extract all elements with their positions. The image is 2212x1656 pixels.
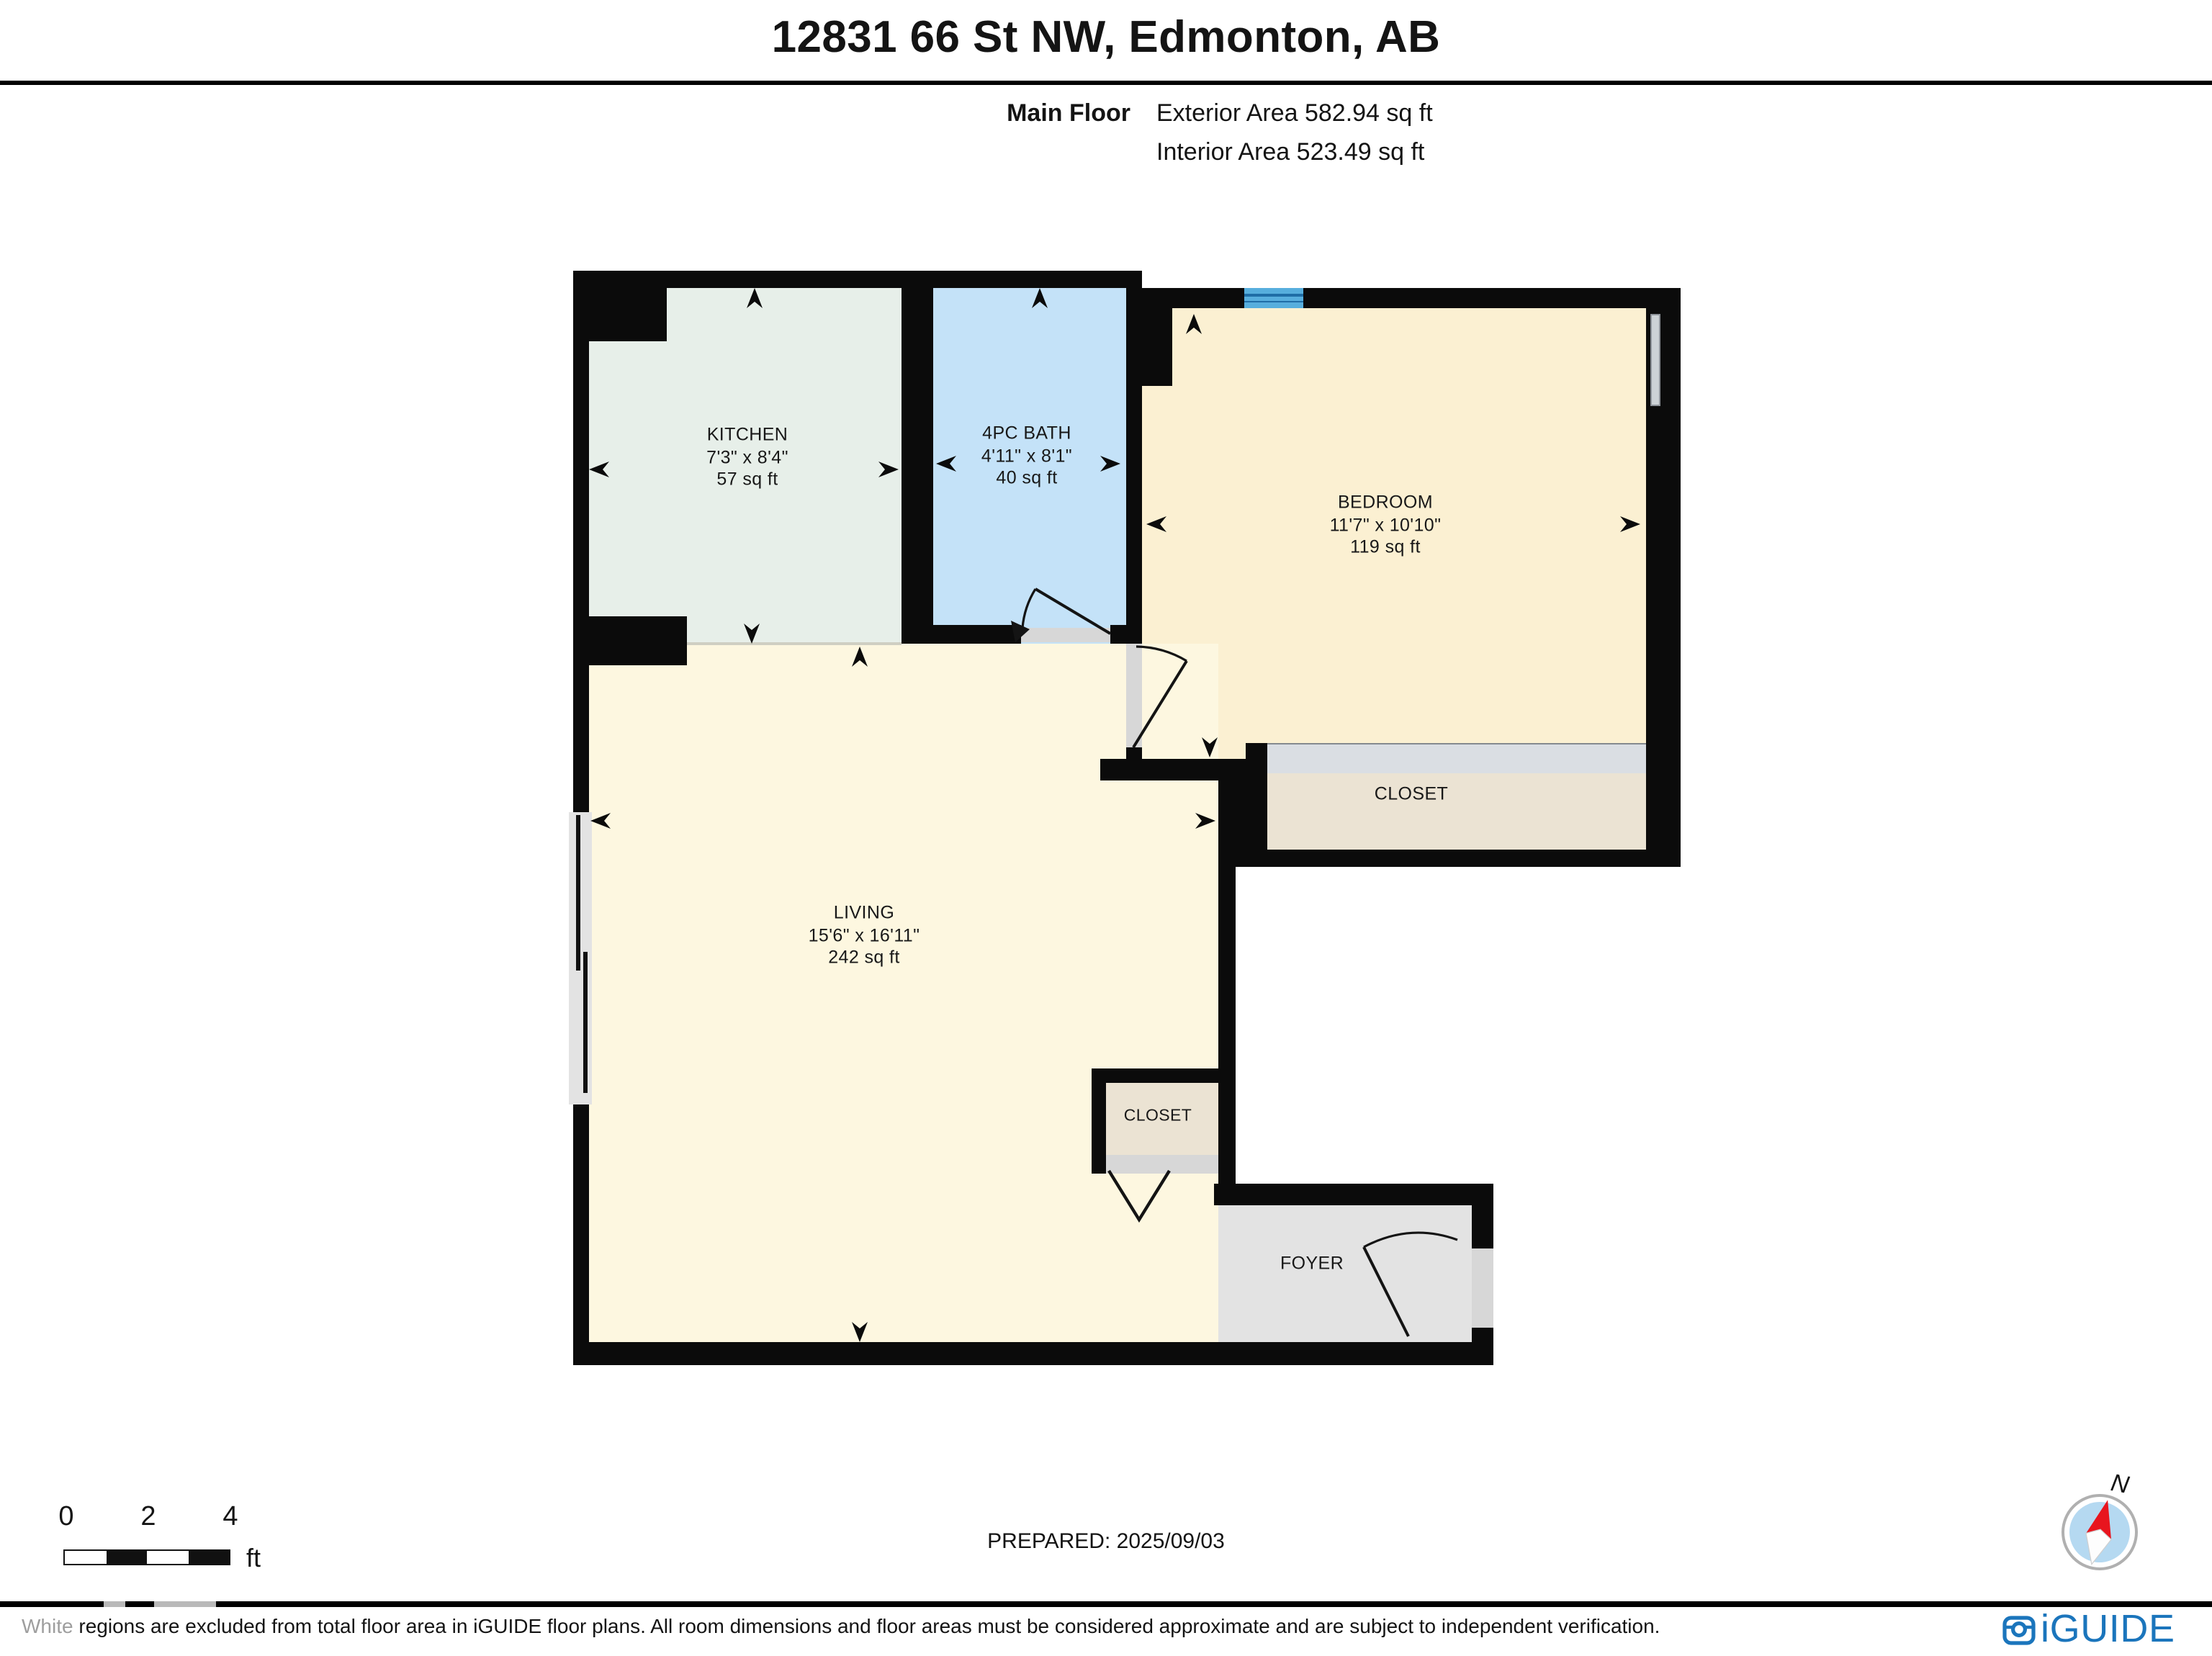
wall-segment [1246, 850, 1681, 867]
iguide-wordmark: iGUIDE [2041, 1607, 2175, 1652]
room-area: 242 sq ft [809, 948, 920, 970]
room-label-bath: 4PC BATH 4'11" x 8'1" 40 sq ft [981, 423, 1072, 490]
sliding-panel [576, 815, 580, 971]
room-name: CLOSET [1375, 784, 1448, 806]
room-name: 4PC BATH [981, 423, 1072, 446]
bedroom-top-window [1244, 288, 1303, 308]
wall-segment [902, 271, 933, 644]
window-mullion [1244, 294, 1303, 296]
disclaimer-text: White regions are excluded from total fl… [22, 1614, 1660, 1637]
wall-segment [933, 625, 1021, 644]
room-dims: 11'7" x 10'10" [1330, 515, 1442, 537]
room-label-living-closet: CLOSET [1124, 1107, 1192, 1129]
wall-segment [573, 616, 687, 665]
room-name: FOYER [1280, 1254, 1344, 1276]
room-label-foyer: FOYER [1280, 1254, 1344, 1276]
footer-divider-gap [104, 1601, 125, 1606]
compass-icon [2061, 1493, 2139, 1571]
bedroom-side-window [1650, 314, 1660, 406]
living-closet-door-strip [1106, 1155, 1218, 1174]
window-mullion [1244, 300, 1303, 302]
room-dims: 4'11" x 8'1" [981, 446, 1072, 468]
bedroom-closet-sliding-door [1267, 743, 1646, 773]
wall-segment [1214, 1184, 1493, 1205]
room-area: 40 sq ft [981, 468, 1072, 490]
wall-segment [1126, 288, 1681, 308]
room-name: LIVING [809, 903, 920, 925]
wall-segment [1092, 1068, 1106, 1174]
iguide-logo: iGUIDE [2002, 1607, 2175, 1652]
wall-segment [1472, 1205, 1493, 1248]
room-area: 57 sq ft [706, 469, 788, 492]
disclaimer-lead: White [22, 1614, 73, 1637]
sliding-panel [583, 952, 588, 1093]
prepared-date: PREPARED: 2025/09/03 [0, 1529, 2212, 1554]
wall-segment [1126, 288, 1142, 647]
disclaimer-rest: regions are excluded from total floor ar… [73, 1614, 1660, 1637]
footer-divider-gap [154, 1601, 216, 1606]
wall-segment [1218, 867, 1236, 1184]
room-label-living: LIVING 15'6" x 16'11" 242 sq ft [809, 903, 920, 970]
footer-divider [0, 1601, 2212, 1606]
room-name: CLOSET [1124, 1107, 1192, 1129]
iguide-camera-icon [2002, 1612, 2036, 1647]
room-label-bedroom: BEDROOM 11'7" x 10'10" 119 sq ft [1330, 492, 1442, 559]
room-name: BEDROOM [1330, 492, 1442, 515]
room-area: 119 sq ft [1330, 537, 1442, 559]
bedroom-door-opening [1126, 644, 1142, 747]
living-sliding-window [569, 812, 592, 1104]
room-living [589, 644, 1218, 1342]
wall-segment [1142, 308, 1172, 386]
room-label-bedroom-closet: CLOSET [1375, 784, 1448, 806]
floorplan-page: 12831 66 St NW, Edmonton, AB Main Floor … [0, 0, 2212, 1656]
open-boundary-line [687, 642, 902, 644]
floor-plan: KITCHEN 7'3" x 8'4" 57 sq ft 4PC BATH 4'… [0, 0, 2212, 1656]
foyer-entry-door-opening [1472, 1248, 1493, 1328]
wall-segment [573, 1094, 589, 1365]
wall-segment [573, 271, 589, 821]
room-label-kitchen: KITCHEN 7'3" x 8'4" 57 sq ft [706, 425, 788, 492]
bath-door-opening [1021, 628, 1110, 642]
room-bedroom-closet [1267, 773, 1646, 850]
room-name: KITCHEN [706, 425, 788, 447]
wall-segment [1092, 1068, 1236, 1083]
room-foyer [1218, 1205, 1472, 1342]
wall-segment [573, 1342, 1493, 1365]
room-dims: 15'6" x 16'11" [809, 925, 920, 948]
room-dims: 7'3" x 8'4" [706, 447, 788, 469]
